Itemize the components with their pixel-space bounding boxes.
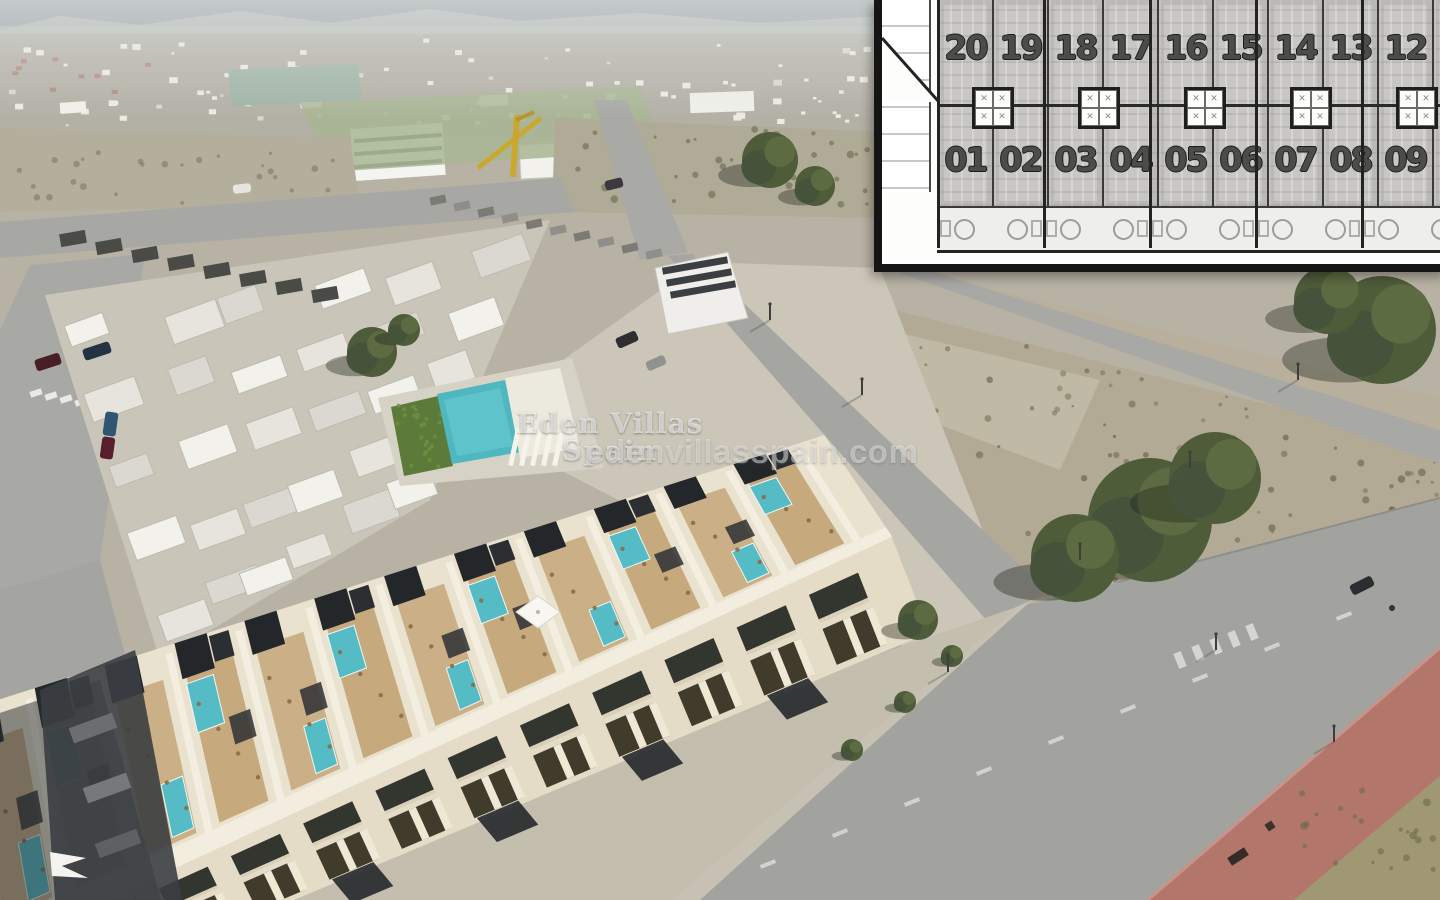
floorplan-terrace-strip [937, 206, 1440, 253]
plan-pair-wall [1043, 0, 1046, 248]
plan-terrace-cell [1149, 208, 1202, 250]
plan-terrace-cell [937, 208, 990, 250]
plan-unit-number: 02 [994, 140, 1047, 179]
plan-unit-number: 11 [1434, 28, 1440, 67]
plan-stair-symbol: ✕✕✕✕ [972, 87, 1014, 129]
plan-unit-number: 09 [1379, 140, 1432, 179]
plan-terrace-cell [1043, 208, 1096, 250]
plan-unit-number: 14 [1269, 28, 1322, 67]
plan-pair-wall [1149, 0, 1152, 248]
plan-stair-symbol: ✕✕✕✕ [1078, 87, 1120, 129]
plan-stair-symbol: ✕✕✕✕ [1396, 87, 1438, 129]
aerial-photo: Eden Villas Spain edenvillasspain.com 20… [0, 0, 1440, 900]
plan-unit-number: 07 [1269, 140, 1322, 179]
plan-unit-number: 18 [1049, 28, 1102, 67]
plan-terrace-cell [1414, 208, 1440, 250]
plan-unit-number: 01 [939, 140, 992, 179]
plan-terrace-cell [1255, 208, 1308, 250]
plan-terrace-cell [1308, 208, 1361, 250]
plan-unit-number: 13 [1324, 28, 1377, 67]
plan-unit-number: 12 [1379, 28, 1432, 67]
plan-unit-number: 19 [994, 28, 1047, 67]
plan-stair-symbol: ✕✕✕✕ [1184, 87, 1226, 129]
plan-unit-number: 08 [1324, 140, 1377, 179]
plan-unit-number: 15 [1214, 28, 1267, 67]
floorplan-corner-cut [882, 0, 952, 110]
plan-terrace-cell [1202, 208, 1255, 250]
plan-unit-number: 10 [1434, 140, 1440, 179]
floorplan-overlay: 2001190218031704160515061407130812091110… [874, 0, 1440, 272]
plan-unit-number: 03 [1049, 140, 1102, 179]
plan-terrace-cell [990, 208, 1043, 250]
plan-terrace-cell [1361, 208, 1414, 250]
floorplan-paper: 2001190218031704160515061407130812091110… [882, 0, 1440, 264]
plan-unit-number: 16 [1159, 28, 1212, 67]
plan-stair-symbol: ✕✕✕✕ [1290, 87, 1332, 129]
plan-pair-wall [1255, 0, 1258, 248]
plan-terrace-cell [1096, 208, 1149, 250]
plan-pair-wall [1361, 0, 1364, 248]
plan-unit-number: 06 [1214, 140, 1267, 179]
plan-unit-number: 05 [1159, 140, 1212, 179]
